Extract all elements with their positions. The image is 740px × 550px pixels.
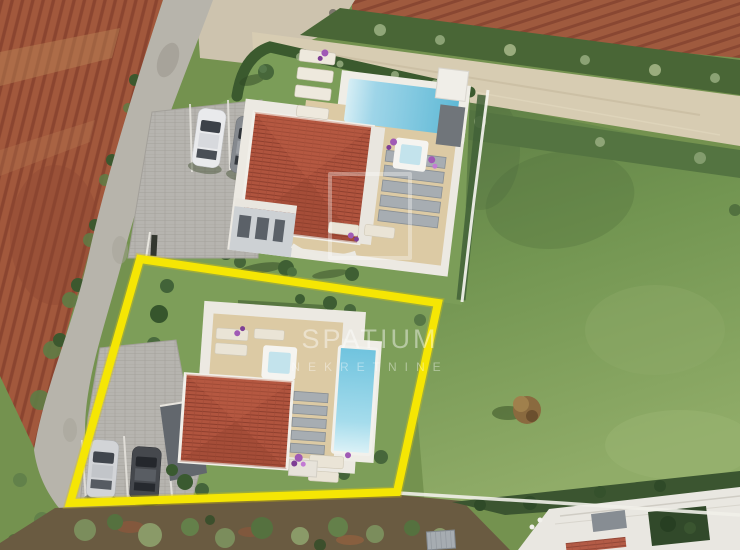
watermark-logo [328,172,412,260]
outdoor-kitchen [435,68,468,101]
post [150,235,157,256]
watermark-tagline: NEKRETNINE [250,360,490,374]
aerial-photo: SPATIUM NEKRETNINE [0,0,740,550]
watermark-brand: SPATIUM [250,324,490,355]
skylight-strips [290,391,328,454]
garden-shed [426,530,455,550]
outdoor-sofa [436,104,466,147]
scene-canvas [0,0,740,550]
